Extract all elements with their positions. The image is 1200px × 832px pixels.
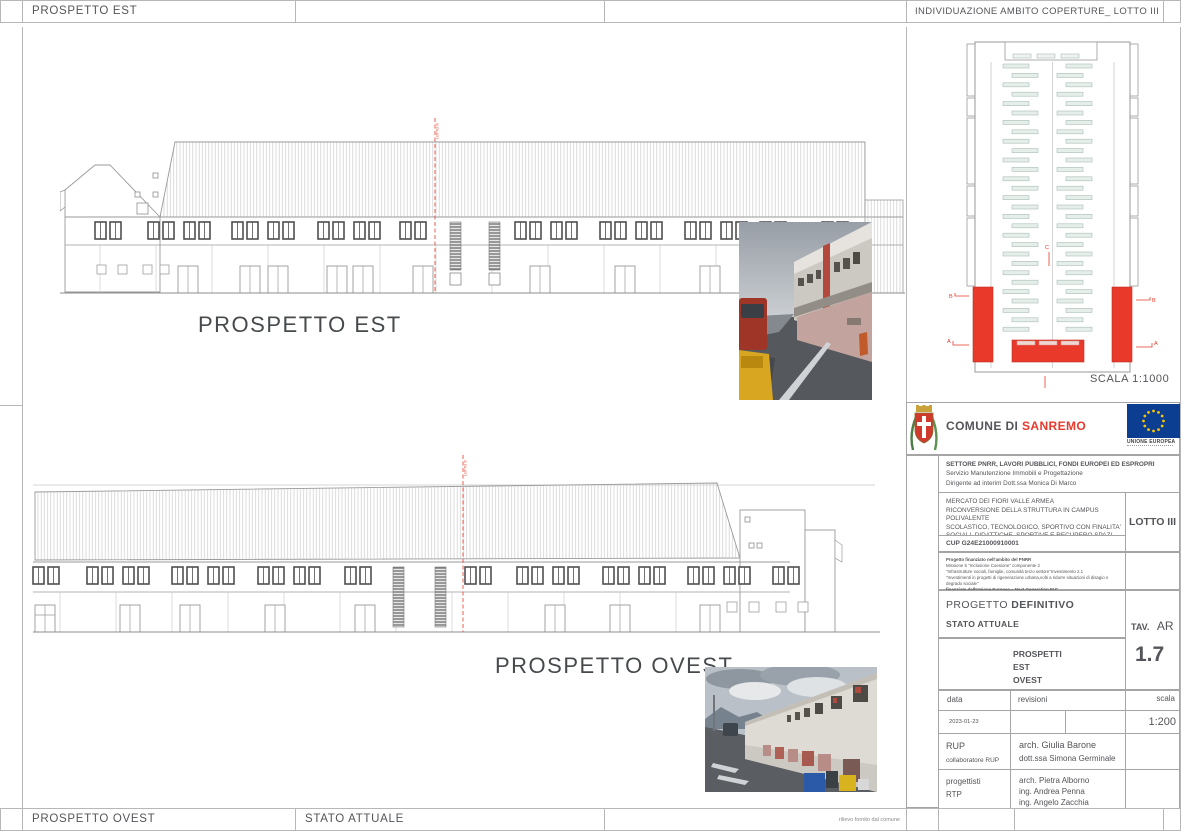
designers-label-1: progettisti: [946, 777, 1010, 786]
project-line-2: RICONVERSIONE DELLA STRUTTURA IN CAMPUS …: [946, 507, 1125, 524]
east-elevation-caption: PROSPETTO EST: [198, 312, 402, 338]
roof-plan-drawing: BBAACC: [945, 38, 1180, 388]
top-bar-empty-cell-2: [604, 0, 907, 23]
top-bar-left-title: PROSPETTO EST: [22, 0, 296, 23]
bottom-left-label: PROSPETTO OVEST: [32, 813, 155, 825]
svg-text:A: A: [1154, 341, 1158, 347]
phase-name: DEFINITIVO: [1011, 599, 1074, 611]
titleblock-funding-spacer: [1125, 552, 1180, 590]
bottom-bar-spacer-cell: [0, 808, 23, 831]
project-line-3: SCOLASTICO, TECNOLOGICO, SPORTIVO CON FI…: [946, 524, 1125, 533]
scale-value-cell: 1:200: [1125, 710, 1180, 734]
titleblock-department-row: SETTORE PNRR, LAVORI PUBBLICI, FONDI EUR…: [938, 455, 1180, 493]
sheet-right-rule: [1180, 27, 1181, 808]
sheet-title-line-3: OVEST: [1013, 674, 1125, 687]
top-bar-corner-cell: [1163, 0, 1181, 23]
svg-text:LOTTO III: LOTTO III: [464, 460, 468, 476]
tav-line: TAV. AR: [1131, 619, 1179, 633]
west-photo-image: [705, 667, 877, 792]
designers-names-cell: arch. Pietra Alborno ing. Andrea Penna i…: [1010, 769, 1126, 809]
sheet-number: 1.7: [1135, 643, 1179, 667]
eu-flag-caption: UNIONE EUROPEA: [1127, 439, 1180, 445]
rup-collab-name: dott.ssa Simona Germinale: [1019, 754, 1125, 763]
designer-name-2: ing. Andrea Penna: [1019, 786, 1125, 797]
titleblock-project-row: MERCATO DEI FIORI VALLE ARMEA RICONVERSI…: [938, 492, 1126, 536]
titleblock-left-strip: [906, 455, 939, 808]
west-elevation-caption: PROSPETTO OVEST: [495, 653, 733, 679]
revision-cell-2: [1065, 710, 1126, 734]
top-right-label: INDIVIDUAZIONE AMBITO COPERTURE_ LOTTO I…: [915, 6, 1159, 17]
funding-line-4: "Investimenti in progetti di rigenerazio…: [946, 575, 1125, 587]
titleblock-phase-row: PROGETTO DEFINITIVO STATO ATTUALE: [938, 590, 1126, 638]
sheet-title-line-1: PROSPETTI: [1013, 648, 1125, 661]
left-margin-rule: [22, 27, 23, 808]
eu-flag-block: UNIONE EUROPEA: [1127, 404, 1180, 452]
municipality-prefix: COMUNE DI: [946, 419, 1022, 433]
sheet-title-line-2: EST: [1013, 661, 1125, 674]
plan-scale-label: SCALA 1:1000: [1090, 373, 1169, 385]
rup-names-cell: arch. Giulia Barone dott.ssa Simona Germ…: [1010, 733, 1126, 770]
department-line-2: Servizio Manutenzione Immobili e Progett…: [946, 470, 1179, 477]
tav-code: AR: [1157, 619, 1174, 633]
bottom-bar-left-title: PROSPETTO OVEST: [22, 808, 296, 831]
phase-title: PROGETTO DEFINITIVO: [946, 599, 1125, 611]
top-bar-spacer-cell: [0, 0, 23, 23]
west-elevation-drawing: LOTTO III: [30, 450, 890, 638]
east-site-photo: [739, 222, 872, 400]
municipality-name: SANREMO: [1022, 419, 1086, 433]
revisioni-header-cell: revisioni: [1010, 690, 1126, 711]
tav-cell: TAV. AR 1.7: [1125, 590, 1180, 690]
tav-label: TAV.: [1131, 622, 1149, 632]
designers-spacer-cell: [1125, 769, 1180, 809]
bottom-bar-note-cell: rilievo fornito dal comune: [604, 808, 907, 831]
lotto-cell: LOTTO III: [1125, 492, 1180, 552]
designer-name-3: ing. Angelo Zacchia: [1019, 797, 1125, 808]
bottom-bar-corner-cell: [1163, 808, 1181, 831]
bottom-bar-center-title: STATO ATTUALE: [295, 808, 605, 831]
bottom-center-label: STATO ATTUALE: [305, 813, 404, 825]
project-line-1: MERCATO DEI FIORI VALLE ARMEA: [946, 498, 1125, 507]
bottom-bar-cell-2: [938, 808, 1015, 831]
department-line-1: SETTORE PNRR, LAVORI PUBBLICI, FONDI EUR…: [946, 461, 1179, 468]
titleblock-funding-row: Progetto finanziato nell'ambito del PNRR…: [938, 552, 1126, 590]
data-header-cell: data: [938, 690, 1011, 711]
svg-text:C: C: [1045, 245, 1049, 251]
svg-text:B: B: [949, 294, 953, 300]
bottom-bar-cell-1: [906, 808, 939, 831]
svg-text:A: A: [947, 339, 951, 345]
rup-labels-cell: RUP collaboratore RUP: [938, 733, 1011, 770]
date-value-cell: 2023-01-23: [938, 710, 1011, 734]
rup-collab-label: collaboratore RUP: [946, 757, 1010, 764]
status-label: STATO ATTUALE: [946, 619, 1125, 629]
eu-flag-icon: [1127, 404, 1180, 438]
top-bar-right-title: INDIVIDUAZIONE AMBITO COPERTURE_ LOTTO I…: [906, 0, 1164, 23]
rup-spacer-cell: [1125, 733, 1180, 770]
drawing-sheet: PROSPETTO EST INDIVIDUAZIONE AMBITO COPE…: [0, 0, 1200, 832]
rup-name: arch. Giulia Barone: [1019, 740, 1125, 750]
designer-name-1: arch. Pietra Alborno: [1019, 775, 1125, 786]
department-line-3: Dirigente ad interim Dott.ssa Monica Di …: [946, 480, 1179, 487]
revision-cell-1: [1010, 710, 1066, 734]
svg-text:LOTTO III: LOTTO III: [436, 123, 440, 139]
municipality-title: COMUNE DI SANREMO: [946, 419, 1086, 433]
designers-label-2: RTP: [946, 790, 1010, 799]
left-margin-divider: [0, 405, 22, 406]
rup-label: RUP: [946, 741, 1010, 751]
top-bar-empty-cell-1: [295, 0, 605, 23]
east-photo-image: [739, 222, 872, 400]
bottom-bar-cell-3: [1014, 808, 1164, 831]
phase-prefix: PROGETTO: [946, 599, 1011, 611]
scala-header-cell: scala: [1125, 690, 1180, 711]
cup-cell: CUP G24E21000910001: [938, 535, 1126, 552]
designers-labels-cell: progettisti RTP: [938, 769, 1011, 809]
west-site-photo: [705, 667, 877, 792]
sheet-title-cell: PROSPETTI EST OVEST: [938, 638, 1126, 690]
coat-of-arms-icon: [909, 404, 939, 452]
svg-text:B: B: [1152, 298, 1156, 304]
top-left-label: PROSPETTO EST: [32, 5, 137, 17]
municipal-coat-of-arms: [909, 404, 939, 452]
eu-flag-subcaption: [1127, 445, 1173, 448]
